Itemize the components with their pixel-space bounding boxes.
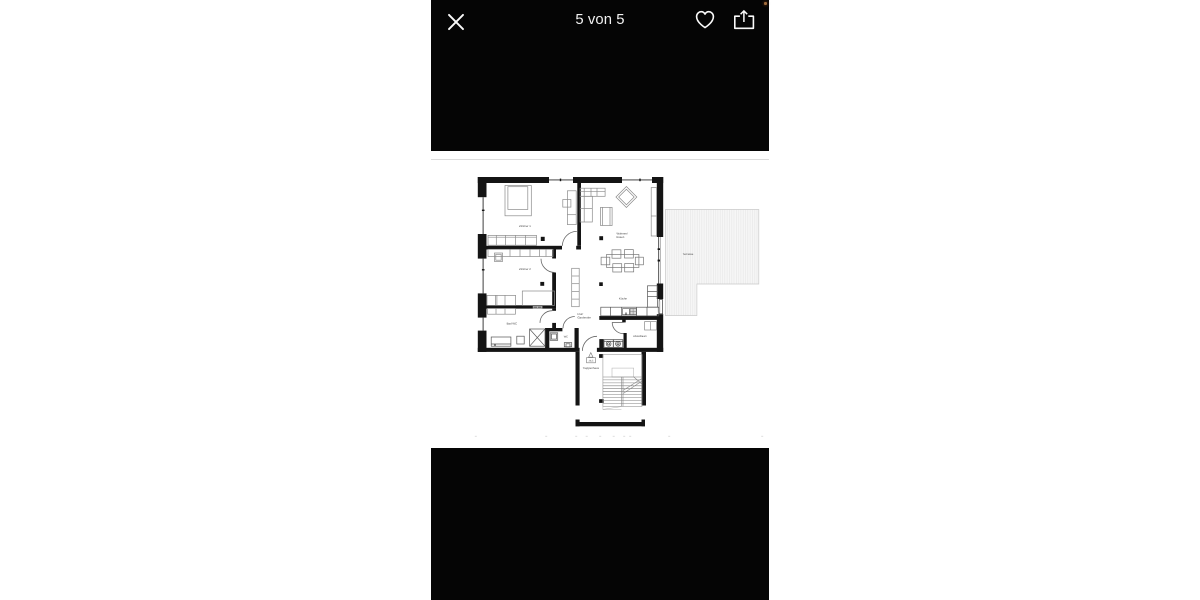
svg-text:Zimmer 1: Zimmer 1 bbox=[519, 224, 531, 228]
svg-text:Abstellraum: Abstellraum bbox=[633, 335, 647, 338]
svg-text:Bad WC: Bad WC bbox=[507, 322, 517, 326]
svg-text:Zimmer 2: Zimmer 2 bbox=[519, 267, 531, 271]
svg-text:Terrasse: Terrasse bbox=[683, 252, 694, 256]
svg-text:WC: WC bbox=[564, 335, 568, 338]
svg-text:Garderobe: Garderobe bbox=[578, 315, 592, 319]
svg-text:26,5: 26,5 bbox=[589, 360, 594, 363]
svg-text:Essen: Essen bbox=[617, 235, 625, 239]
svg-text:Küche: Küche bbox=[619, 296, 627, 300]
